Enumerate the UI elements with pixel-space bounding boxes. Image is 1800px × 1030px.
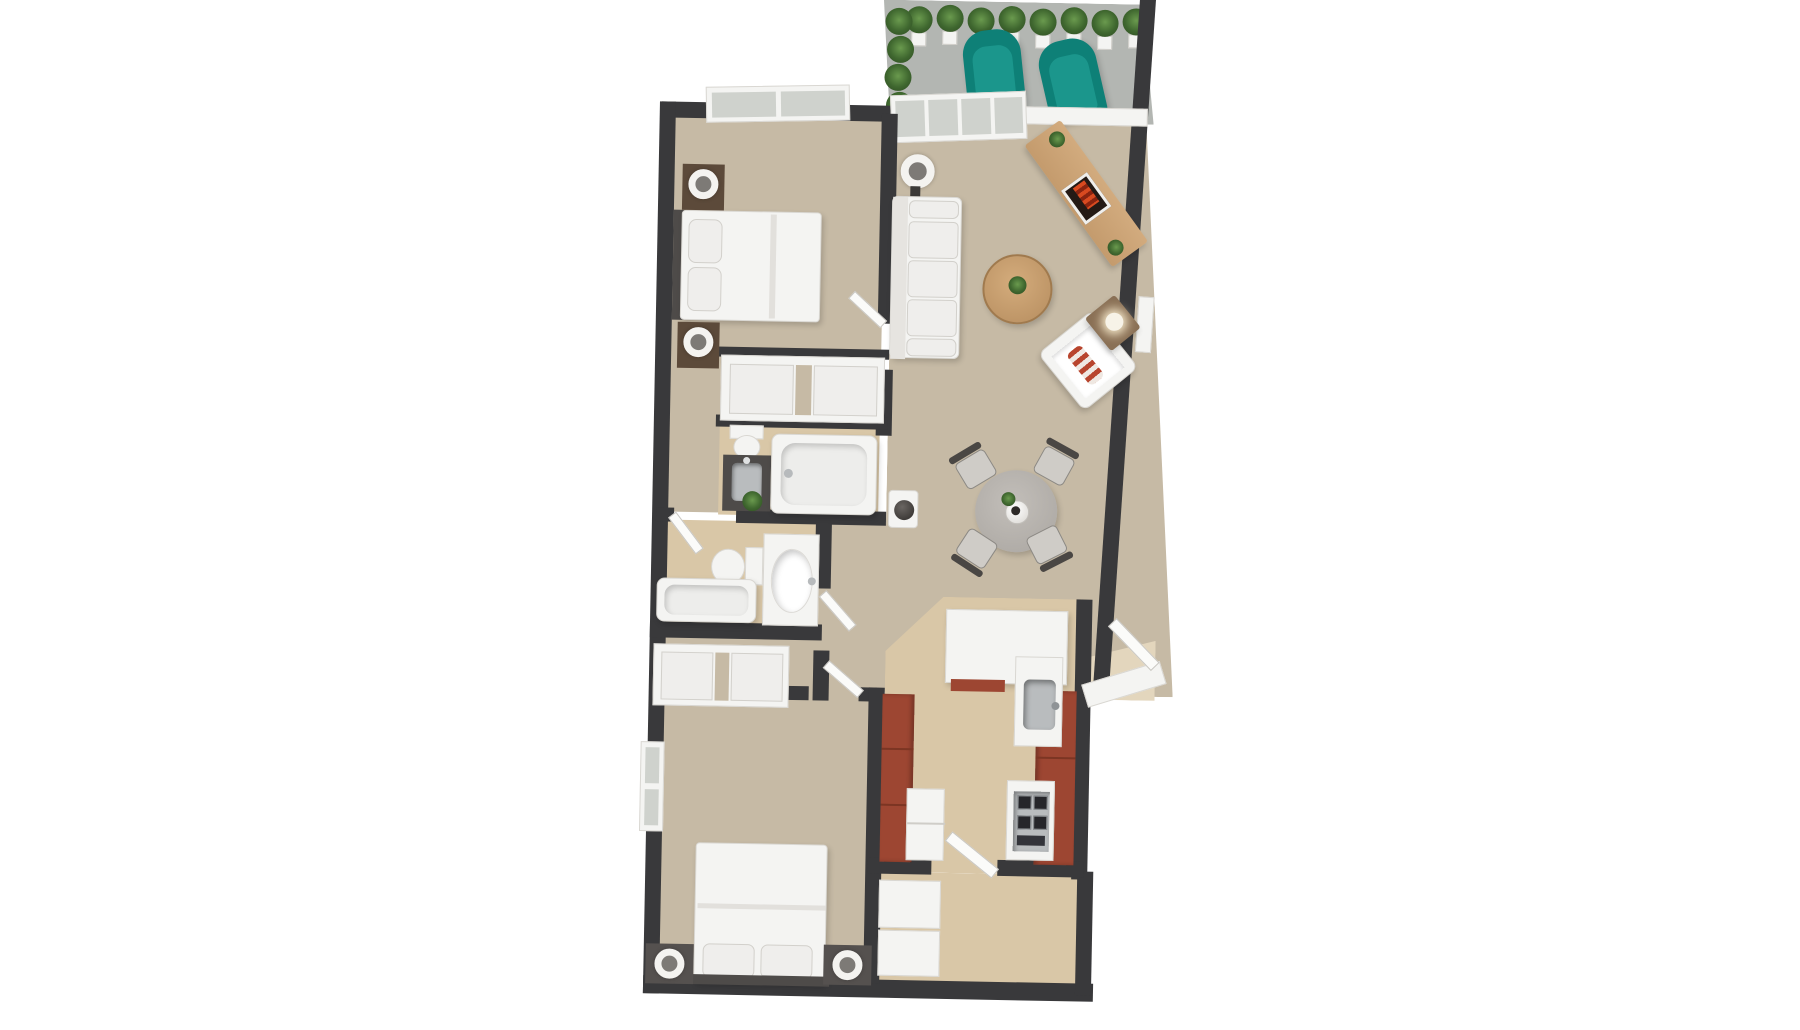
bedroom1-closet <box>720 355 885 424</box>
sofa-armrest <box>909 200 959 219</box>
closet-sliding-door <box>729 364 794 415</box>
potted-plant-icon <box>1029 8 1057 36</box>
fireplace-flames <box>1073 180 1100 209</box>
laundry-right-wall <box>1075 871 1093 995</box>
fridge <box>905 788 944 861</box>
burner-icon <box>1017 795 1031 809</box>
floor-plan <box>0 0 1800 1030</box>
bedroom1-window <box>706 84 851 122</box>
nightstand2a <box>645 943 694 984</box>
pedestal <box>888 490 919 529</box>
nightstand2b <box>823 945 872 986</box>
table-lamp-icon <box>688 169 719 200</box>
balcony-parapet <box>1022 106 1148 126</box>
glass-panel <box>961 98 991 135</box>
closet-sliding-door <box>661 651 714 700</box>
plant-pot <box>942 31 957 45</box>
table-lamp-icon <box>832 950 863 981</box>
nightstand1b <box>677 322 720 369</box>
bathtub-B <box>656 577 757 623</box>
potted-plant-icon <box>1091 10 1119 38</box>
sliding-glass-door <box>890 91 1028 143</box>
burner-tray <box>1017 835 1045 846</box>
gas-cooktop <box>1013 791 1050 852</box>
closet-gap <box>795 365 812 415</box>
glass-panel <box>895 100 925 137</box>
pillow <box>760 944 813 979</box>
dryer <box>877 930 940 977</box>
window-pane <box>645 747 660 783</box>
faucet-icon <box>1051 702 1059 710</box>
sofa-cushion <box>908 221 959 259</box>
console-plant-icon <box>1046 128 1068 150</box>
window-pane <box>644 789 659 825</box>
potted-plant-icon <box>884 64 912 92</box>
sofa-back <box>890 197 908 359</box>
side-table-lamp-icon <box>1102 309 1127 334</box>
table-lamp-icon <box>654 948 685 979</box>
sofa <box>889 196 962 359</box>
pillow <box>687 267 722 312</box>
closet-sliding-door <box>730 653 783 702</box>
sofa-cushion <box>907 299 958 337</box>
tub-basin <box>780 443 867 507</box>
faucet-icon <box>784 469 793 478</box>
sofa-armrest <box>906 338 956 357</box>
peninsula-base <box>951 679 1005 692</box>
bedroom2-window <box>639 741 665 831</box>
table-plant-icon <box>1008 276 1026 294</box>
potted-plant-icon <box>887 36 915 64</box>
faucet-icon <box>808 577 816 585</box>
potted-plant-icon <box>936 5 964 33</box>
window-pane <box>781 91 845 117</box>
cabinet-divider <box>882 748 914 751</box>
potted-plant-icon <box>1060 7 1088 35</box>
bed1 <box>680 210 822 323</box>
glass-panel <box>928 99 958 136</box>
duvet-fold <box>769 214 777 318</box>
bathtub-A <box>770 434 878 516</box>
burner-icon <box>1017 815 1031 829</box>
closet-gap <box>715 652 730 700</box>
plant-pot <box>1097 36 1112 50</box>
balcony-plant-row <box>905 4 1150 67</box>
window-pane <box>712 92 776 118</box>
vanity-B <box>762 533 820 626</box>
faucet-icon <box>743 457 750 464</box>
bathA-vestibule-floor <box>666 420 722 513</box>
sink-counter <box>1014 656 1064 747</box>
tub-basin <box>664 584 749 616</box>
sofa-cushion <box>907 260 958 298</box>
fridge-door-gap <box>907 822 945 825</box>
glass-panel <box>994 97 1023 134</box>
bedroom2-closet <box>652 643 789 708</box>
potted-plant-icon <box>885 8 913 36</box>
burner-icon <box>1033 796 1047 810</box>
table-lamp-icon <box>683 327 714 358</box>
burner-icon <box>1033 816 1047 830</box>
closet-sliding-door <box>813 365 878 416</box>
bed2 <box>693 842 828 985</box>
cabinet-divider <box>1035 757 1075 760</box>
stove-counter <box>1005 780 1055 861</box>
nightstand1a <box>682 164 725 211</box>
vase-icon <box>894 500 914 520</box>
washer <box>878 880 941 929</box>
duvet-fold <box>698 903 826 910</box>
console-plant-icon <box>1104 236 1126 258</box>
wall-bathB-right-lower <box>813 650 830 700</box>
pillow <box>702 943 755 978</box>
pillow <box>688 219 723 264</box>
